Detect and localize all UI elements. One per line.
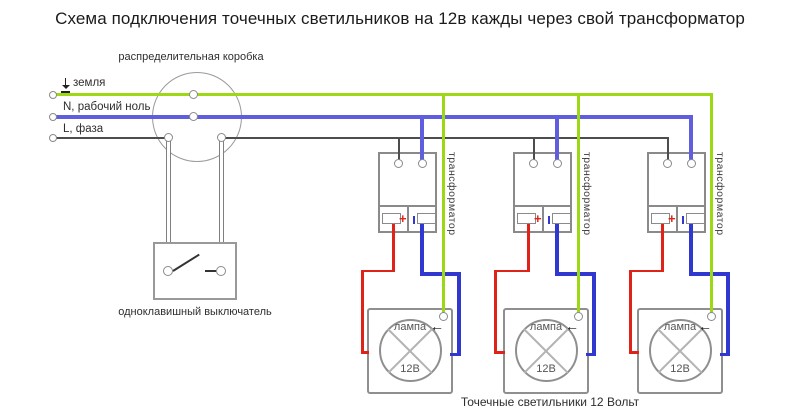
ground-drop [577, 93, 580, 314]
transformer-label: трансформатор [581, 152, 593, 236]
neutral-wire-label: N, рабочий ноль [63, 101, 150, 114]
phase-drop [398, 137, 401, 161]
switch-terminal-left [163, 266, 173, 276]
neutral-wire-horizontal [52, 115, 693, 119]
wire-end-terminal-ground [49, 91, 57, 99]
minus-wire [555, 224, 559, 275]
phase-wire-horizontal-left [52, 137, 168, 140]
plus-wire [629, 351, 639, 354]
plus-mark: + [668, 212, 676, 225]
plus-wire [494, 270, 530, 273]
plus-mark: + [399, 212, 407, 225]
ground-arrow-icon: ← [565, 319, 579, 333]
minus-mark [548, 216, 551, 224]
transformer-label: трансформатор [714, 152, 726, 236]
neutral-drop [555, 115, 559, 161]
wire-end-terminal-neutral [49, 113, 57, 121]
ground-drop [442, 93, 445, 314]
output-terminal-minus [417, 213, 436, 224]
plus-mark: + [534, 212, 542, 225]
lamp-voltage: 12В [516, 363, 576, 375]
output-terminal-minus [552, 213, 571, 224]
plus-wire [629, 270, 632, 354]
junction-dot-ground [189, 90, 198, 99]
switch-label: одноклавишный выключатель [105, 306, 285, 318]
phase-wire-label: L, фаза [63, 123, 103, 136]
plus-wire [361, 351, 369, 354]
transformer-terminal [687, 159, 696, 168]
neutral-drop [689, 115, 693, 161]
plus-wire [629, 270, 664, 273]
ground-arrow-icon: ← [430, 319, 444, 333]
minus-wire [586, 353, 596, 357]
diagram-title: Схема подключения точечных светильников … [0, 9, 800, 29]
minus-wire [457, 272, 461, 356]
plus-wire [494, 351, 505, 354]
junction-dot-phase-left [164, 133, 173, 142]
wiring-diagram-canvas: Схема подключения точечных светильников … [0, 0, 800, 414]
neutral-drop [420, 115, 424, 161]
transformer-terminal [663, 159, 672, 168]
switch-contact-stub [205, 270, 216, 272]
minus-wire [420, 272, 461, 276]
junction-dot-neutral [189, 112, 198, 121]
minus-mark [413, 216, 416, 224]
switch-terminal-right [216, 266, 226, 276]
ground-wire-horizontal [52, 93, 713, 96]
spotlights-caption: Точечные светильники 12 Вольт [400, 396, 700, 409]
transformer-terminal [394, 159, 403, 168]
transformer-terminal [529, 159, 538, 168]
transformer-label: трансформатор [446, 152, 458, 236]
minus-wire [726, 272, 730, 356]
phase-drop [533, 137, 536, 161]
lamp-voltage: 12В [380, 363, 440, 375]
minus-wire [450, 353, 461, 357]
minus-wire [720, 353, 730, 357]
earth-ground-icon [61, 78, 71, 94]
plus-wire [361, 270, 364, 354]
minus-wire [555, 272, 596, 276]
lamp-voltage: 12В [650, 363, 710, 375]
ground-arrow-icon: ← [698, 319, 712, 333]
plus-wire [661, 224, 664, 272]
junction-dot-phase-right [217, 133, 226, 142]
junction-box-label: распределительная коробка [101, 51, 281, 63]
ground-drop [710, 93, 713, 314]
transformer-terminal [553, 159, 562, 168]
transformer-terminal [418, 159, 427, 168]
phase-wire-horizontal-right [221, 137, 669, 140]
plus-wire [494, 270, 497, 354]
minus-wire [420, 224, 424, 275]
ground-wire-label: земля [73, 77, 105, 90]
plus-wire [392, 224, 395, 272]
wire-end-terminal-phase [49, 134, 57, 142]
minus-wire [592, 272, 596, 356]
phase-drop [667, 137, 670, 161]
plus-wire [361, 270, 395, 273]
output-terminal-minus [686, 213, 705, 224]
minus-mark [682, 216, 685, 224]
minus-wire [689, 224, 693, 275]
plus-wire [527, 224, 530, 272]
